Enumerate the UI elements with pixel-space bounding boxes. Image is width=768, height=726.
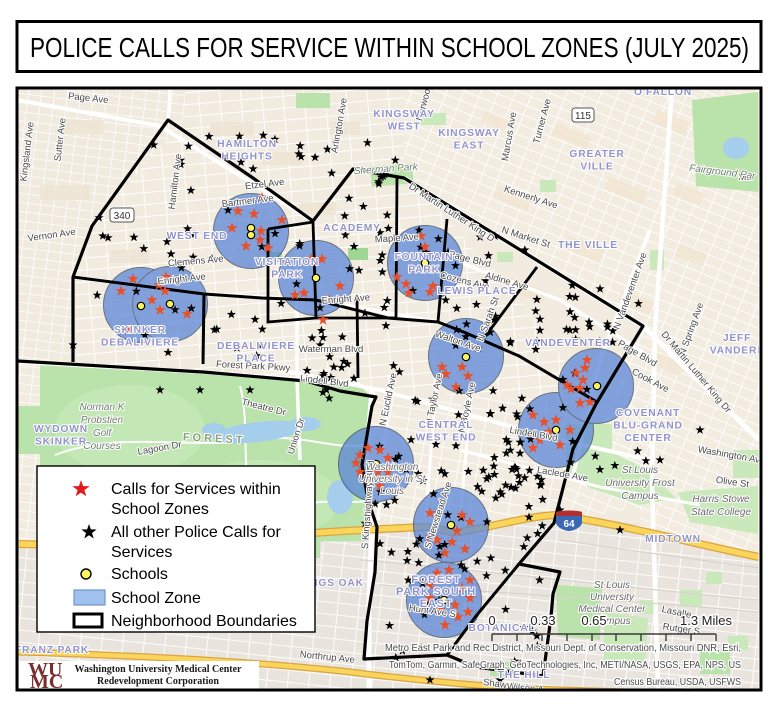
svg-text:St Louis: St Louis bbox=[594, 580, 630, 591]
svg-text:VANDERL: VANDERL bbox=[710, 346, 765, 357]
svg-text:LEWIS PLACE: LEWIS PLACE bbox=[437, 286, 516, 297]
svg-text:FOREST: FOREST bbox=[411, 574, 460, 586]
svg-text:Census Bureau, USDA, USFWS: Census Bureau, USDA, USFWS bbox=[614, 676, 741, 688]
svg-text:KINGSWAY: KINGSWAY bbox=[373, 109, 435, 120]
svg-text:Metro East Park and Rec Distri: Metro East Park and Rec District, Missou… bbox=[385, 642, 741, 654]
svg-text:0.33: 0.33 bbox=[530, 613, 555, 628]
svg-text:DEBALIVIERE: DEBALIVIERE bbox=[217, 341, 295, 352]
svg-text:WEST END: WEST END bbox=[167, 231, 228, 242]
svg-text:Calls for Services within: Calls for Services within bbox=[111, 481, 281, 498]
svg-text:EAST: EAST bbox=[420, 598, 453, 610]
svg-text:1.3 Miles: 1.3 Miles bbox=[680, 613, 733, 628]
svg-text:PARK: PARK bbox=[271, 270, 303, 281]
svg-text:Washington: Washington bbox=[366, 462, 419, 473]
svg-text:0.65: 0.65 bbox=[581, 613, 606, 628]
svg-text:PLACE: PLACE bbox=[237, 354, 276, 365]
svg-text:VILLE: VILLE bbox=[580, 162, 613, 173]
svg-text:CENTRAL: CENTRAL bbox=[419, 420, 474, 431]
svg-text:DEBALIVIERE: DEBALIVIERE bbox=[101, 338, 179, 349]
svg-text:Norman K: Norman K bbox=[79, 402, 125, 413]
svg-text:MIDTOWN: MIDTOWN bbox=[645, 534, 701, 545]
svg-text:Harris Stowe: Harris Stowe bbox=[692, 494, 750, 505]
svg-text:THE VILLE: THE VILLE bbox=[558, 240, 618, 251]
svg-text:Louis: Louis bbox=[380, 486, 404, 497]
svg-text:JEFF: JEFF bbox=[723, 333, 751, 344]
svg-text:KINGSWAY: KINGSWAY bbox=[438, 128, 500, 139]
svg-text:Schools: Schools bbox=[111, 566, 168, 583]
svg-text:Golf: Golf bbox=[93, 428, 113, 439]
svg-text:WEST END: WEST END bbox=[416, 433, 477, 444]
svg-text:VISITATION: VISITATION bbox=[255, 257, 319, 268]
svg-text:GREATER: GREATER bbox=[569, 149, 624, 160]
svg-text:EAST: EAST bbox=[454, 141, 485, 152]
svg-text:University: University bbox=[590, 592, 635, 603]
svg-text:SKINKER: SKINKER bbox=[35, 437, 87, 448]
svg-text:115: 115 bbox=[575, 111, 591, 122]
svg-text:COVENANT: COVENANT bbox=[616, 408, 680, 419]
svg-text:TomTom, Garmin, SafeGraph, Geo: TomTom, Garmin, SafeGraph, GeoTechnologi… bbox=[389, 659, 741, 671]
svg-text:POLICE CALLS FOR SERVICE WITHI: POLICE CALLS FOR SERVICE WITHIN SCHOOL Z… bbox=[30, 32, 749, 63]
svg-text:HAMILTON: HAMILTON bbox=[217, 139, 277, 150]
svg-text:CENTER: CENTER bbox=[624, 433, 671, 444]
svg-text:WEST: WEST bbox=[388, 122, 421, 133]
svg-text:64: 64 bbox=[563, 519, 575, 530]
svg-text:SKINKER: SKINKER bbox=[114, 325, 166, 336]
svg-text:Neighborhood Boundaries: Neighborhood Boundaries bbox=[111, 613, 297, 630]
svg-text:FRANZ PARK: FRANZ PARK bbox=[15, 645, 89, 656]
svg-text:340: 340 bbox=[114, 211, 131, 222]
svg-text:Courses: Courses bbox=[83, 441, 120, 452]
svg-text:University Frost: University Frost bbox=[605, 478, 676, 489]
svg-text:BOTANICAL: BOTANICAL bbox=[468, 623, 535, 634]
svg-text:WYDOWN: WYDOWN bbox=[34, 424, 88, 435]
svg-text:Redevelopment Corporation: Redevelopment Corporation bbox=[97, 676, 219, 687]
svg-text:Waterman Blvd: Waterman Blvd bbox=[299, 344, 364, 355]
svg-text:School Zone: School Zone bbox=[111, 590, 201, 607]
svg-text:FOUNTAIN: FOUNTAIN bbox=[395, 252, 454, 263]
svg-text:PARK SOUTH: PARK SOUTH bbox=[396, 586, 476, 598]
svg-text:Campus: Campus bbox=[621, 491, 658, 502]
svg-text:Services: Services bbox=[111, 544, 172, 561]
svg-text:HEIGHTS: HEIGHTS bbox=[221, 152, 272, 163]
svg-text:All other Police Calls for: All other Police Calls for bbox=[111, 524, 282, 541]
svg-text:School Zones: School Zones bbox=[111, 501, 209, 518]
svg-text:ACADEMY: ACADEMY bbox=[323, 223, 381, 234]
svg-text:Washington University Medical: Washington University Medical Center bbox=[75, 664, 242, 675]
svg-text:VANDEVENTER: VANDEVENTER bbox=[525, 338, 611, 349]
svg-text:St Louis: St Louis bbox=[622, 465, 658, 476]
svg-text:PARK: PARK bbox=[408, 265, 440, 276]
svg-text:NGS OAK: NGS OAK bbox=[310, 578, 364, 589]
svg-text:State College: State College bbox=[691, 507, 751, 518]
svg-text:0: 0 bbox=[488, 613, 495, 628]
svg-text:University in St: University in St bbox=[359, 474, 427, 485]
svg-text:BLU-GRAND: BLU-GRAND bbox=[613, 421, 683, 432]
svg-text:THE HILL: THE HILL bbox=[498, 670, 551, 681]
